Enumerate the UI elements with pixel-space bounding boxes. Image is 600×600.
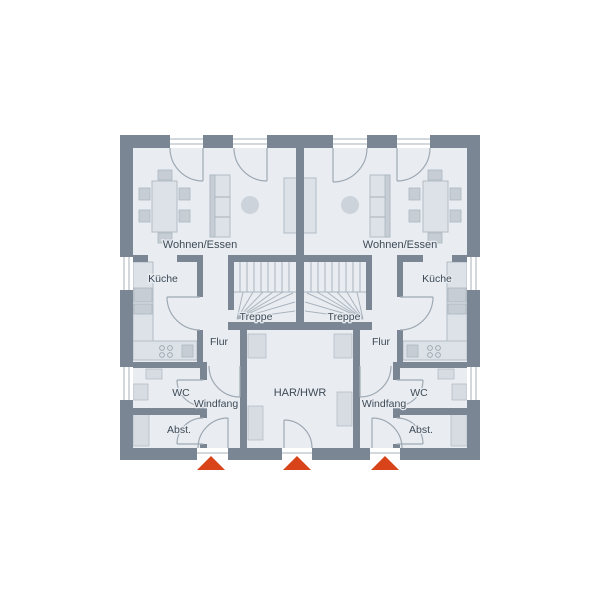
wc-toilet-left: [146, 369, 162, 379]
room-label-windfang-right: Windfang: [362, 398, 407, 410]
room-label-flur-right: Flur: [372, 336, 391, 348]
party-wall: [296, 135, 304, 322]
storage-shelf-left: [133, 414, 149, 446]
room-label-wc-right: WC: [410, 387, 428, 399]
floor-plan-canvas: Wohnen/Essen Wohnen/Essen Küche Küche Tr…: [0, 0, 600, 600]
plant-left: [241, 196, 259, 214]
room-label-windfang-left: Windfang: [194, 398, 239, 410]
wc-sink-left: [133, 384, 148, 400]
room-label-treppe-left: Treppe: [240, 311, 273, 323]
room-label-wc-left: WC: [172, 387, 190, 399]
room-label-har-hwr: HAR/HWR: [274, 387, 327, 399]
storage-shelf-right: [451, 414, 467, 446]
room-label-treppe-right: Treppe: [328, 311, 361, 323]
sideboard-right: [303, 178, 316, 233]
room-label-kueche-left: Küche: [148, 273, 178, 285]
room-label-wohnen-essen-left: Wohnen/Essen: [163, 239, 237, 251]
room-label-abst-left: Abst.: [167, 424, 191, 436]
room-label-flur-left: Flur: [210, 336, 229, 348]
wc-toilet-right: [438, 369, 454, 379]
room-label-wohnen-essen-right: Wohnen/Essen: [363, 239, 437, 251]
dining-table-right: [423, 181, 448, 232]
floor-plan-page: Wohnen/Essen Wohnen/Essen Küche Küche Tr…: [0, 0, 600, 600]
dining-table-left: [152, 181, 177, 232]
room-label-kueche-right: Küche: [422, 273, 452, 285]
sideboard-left: [284, 178, 297, 233]
room-label-abst-right: Abst.: [409, 424, 433, 436]
plant-right: [341, 196, 359, 214]
wc-sink-right: [452, 384, 467, 400]
